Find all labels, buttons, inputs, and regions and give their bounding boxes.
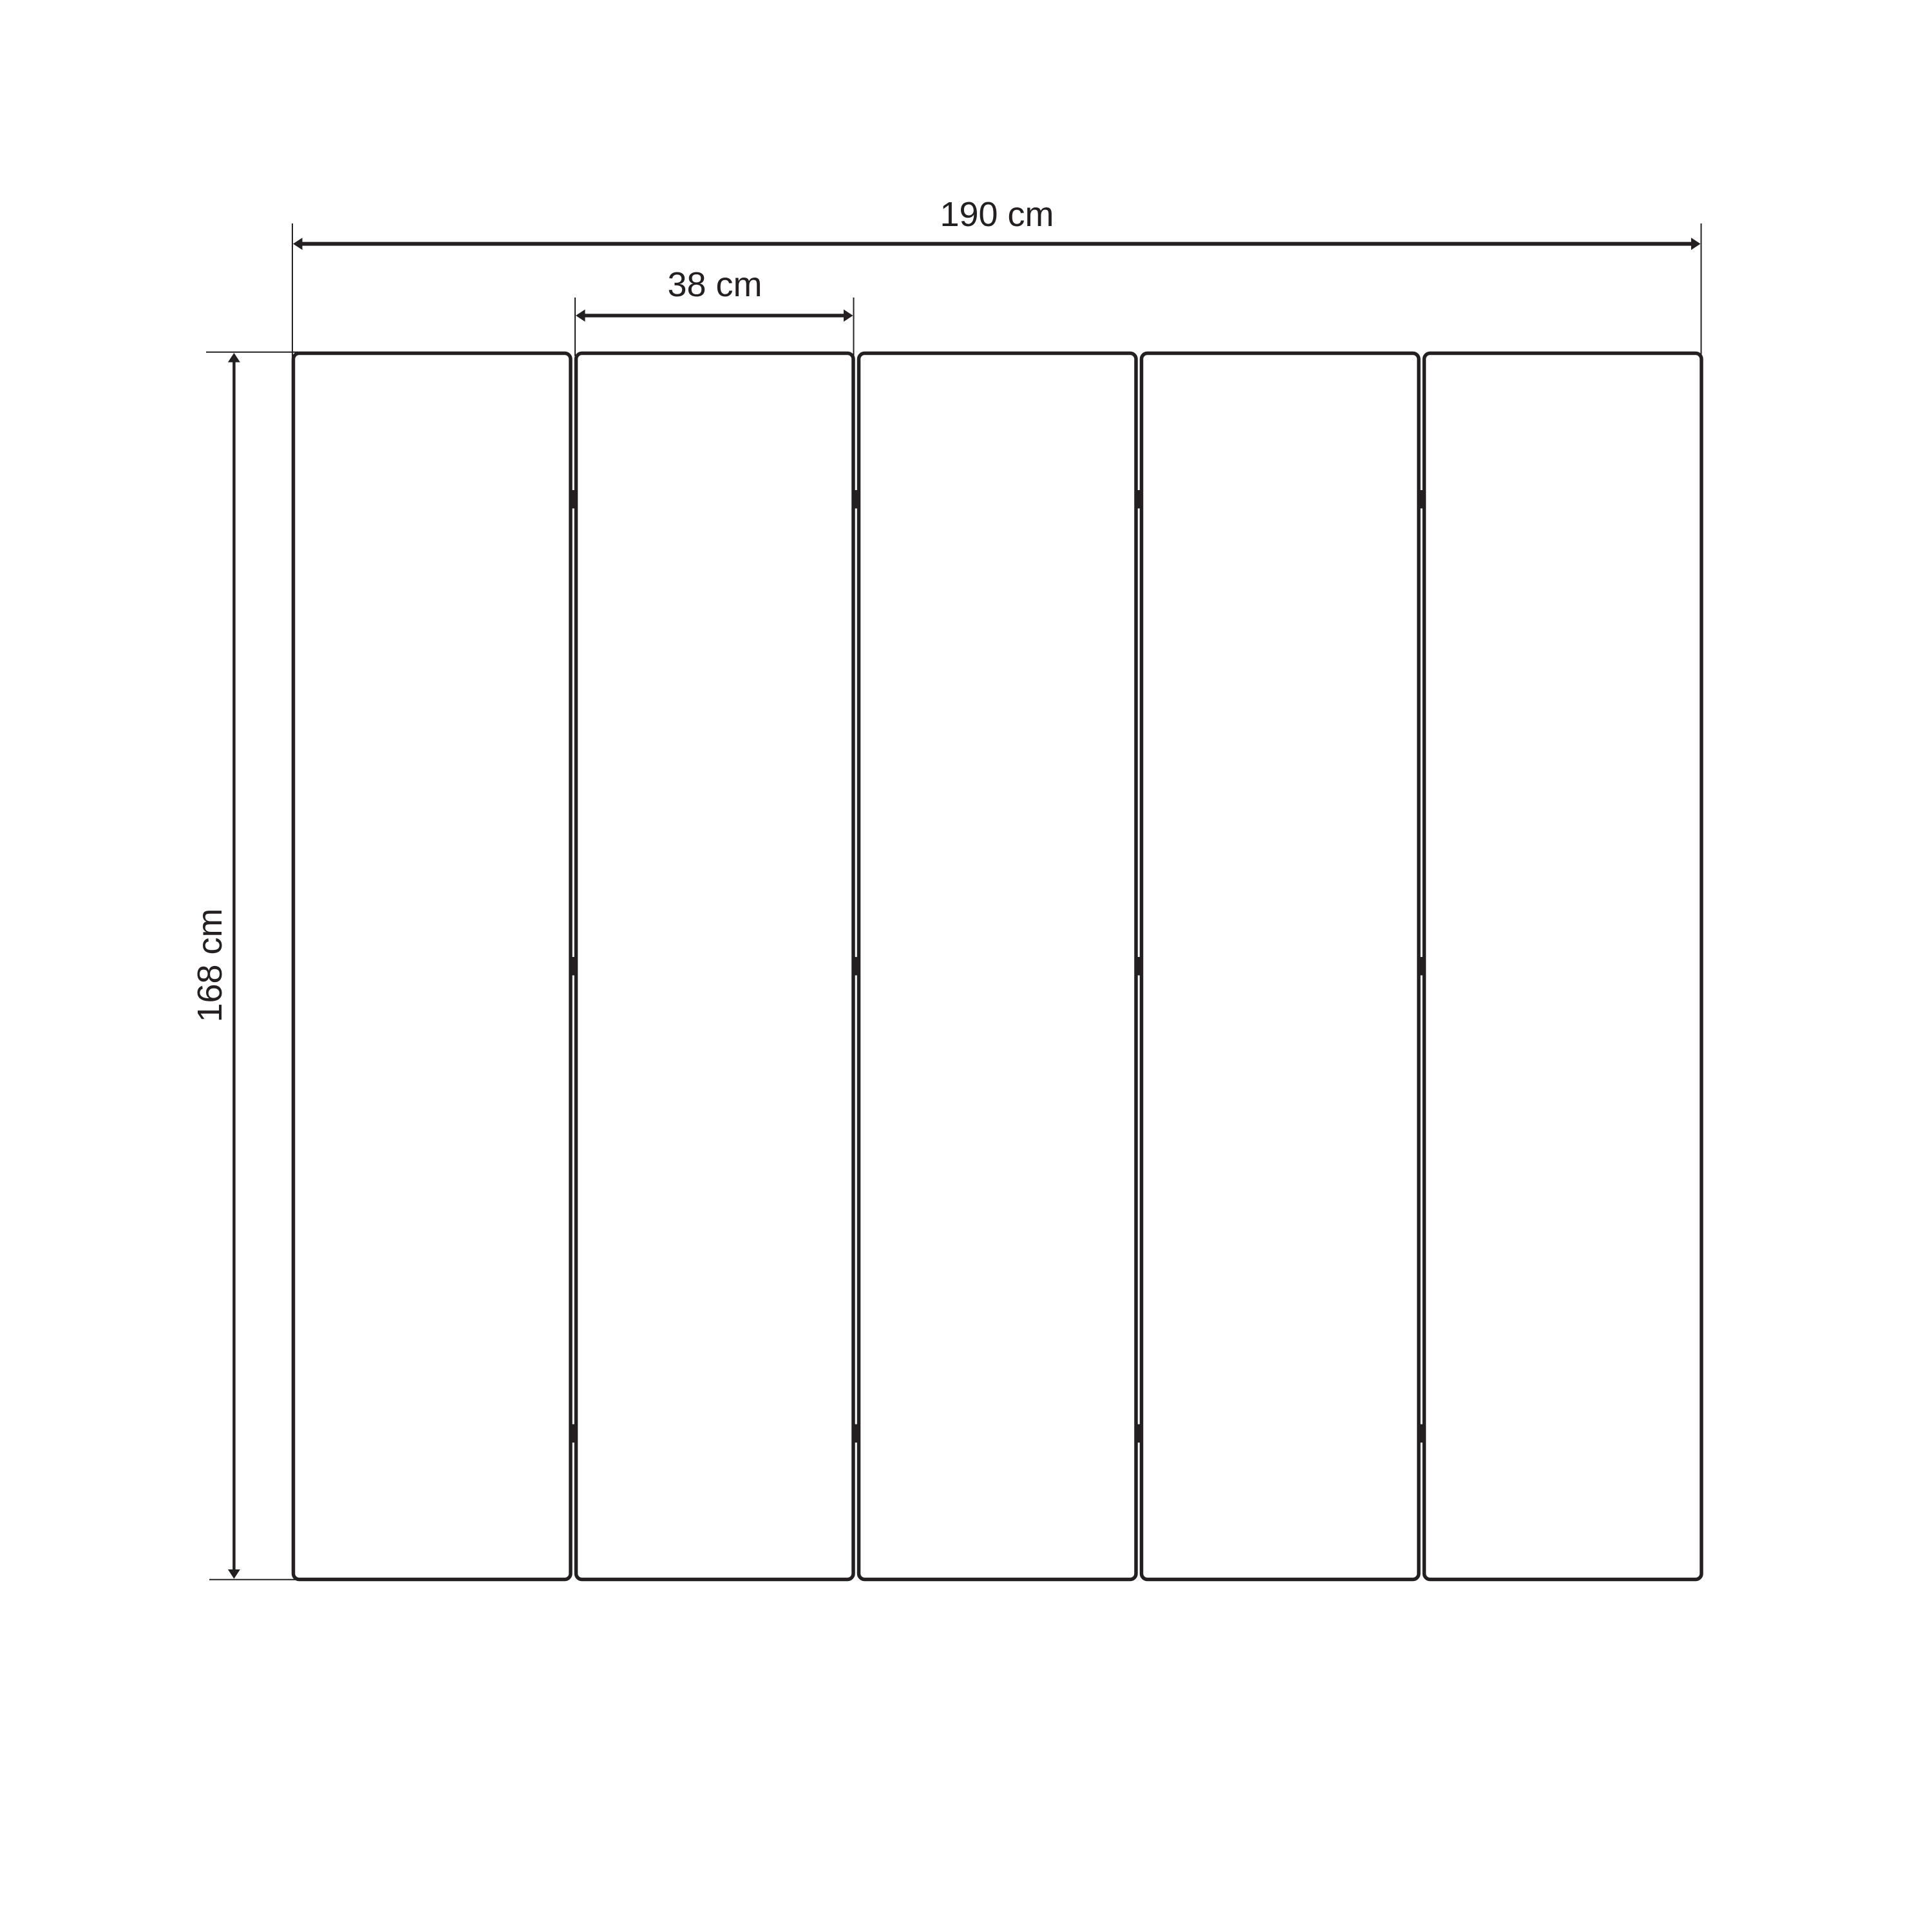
- svg-text:190 cm: 190 cm: [940, 195, 1054, 234]
- svg-text:168 cm: 168 cm: [191, 908, 229, 1022]
- svg-text:38 cm: 38 cm: [667, 265, 762, 304]
